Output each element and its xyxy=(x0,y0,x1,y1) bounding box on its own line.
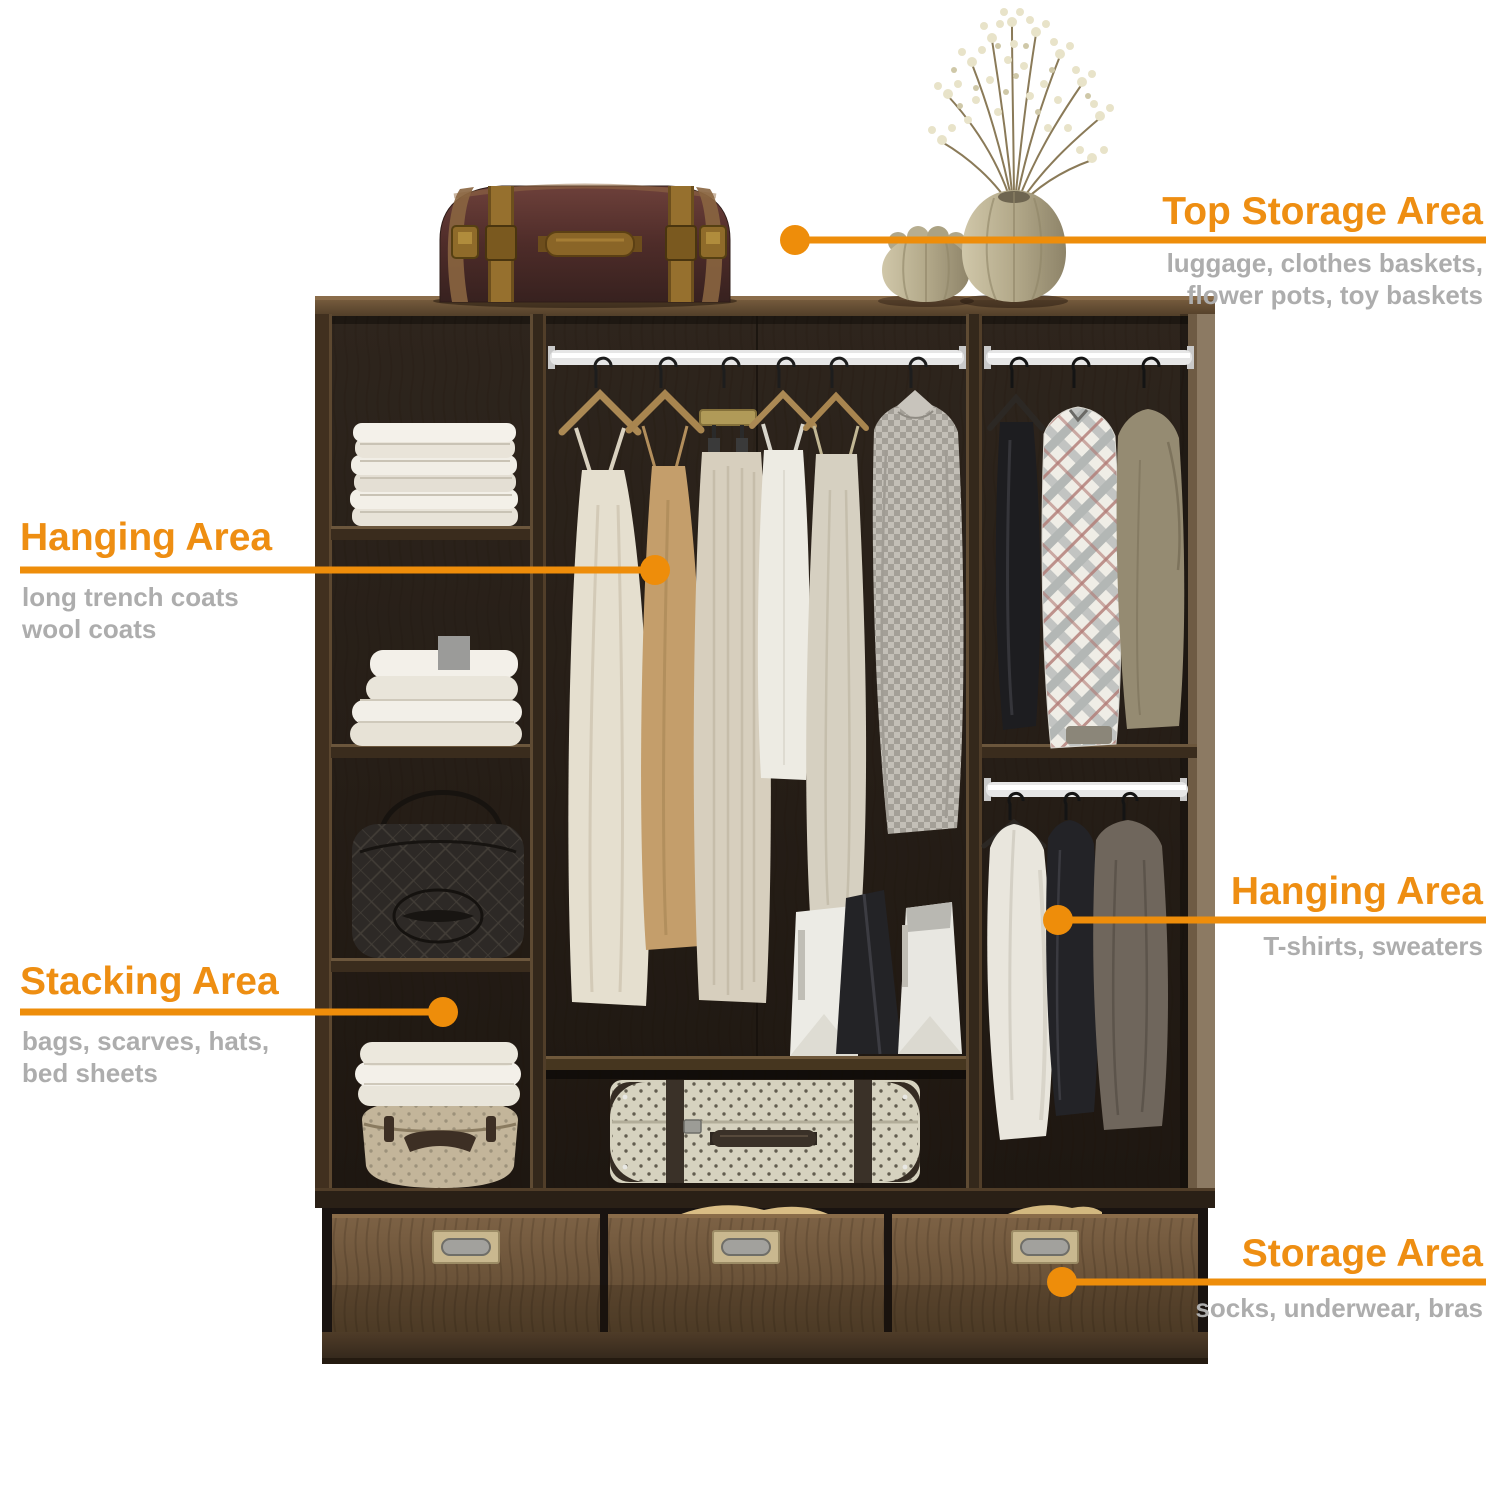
vintage-trunk xyxy=(433,186,737,308)
callout-desc-storage: socks, underwear, bras xyxy=(1195,1292,1483,1324)
callout-title-stacking: Stacking Area xyxy=(20,960,279,1004)
garment-gray-check-coat xyxy=(873,358,964,834)
callout-dot-top-storage xyxy=(780,225,810,255)
callout-dot-stacking xyxy=(428,997,458,1027)
dried-flowers xyxy=(928,8,1114,212)
small-box-on-shelf xyxy=(1066,726,1112,744)
desc-line: T-shirts, sweaters xyxy=(1263,930,1483,962)
callout-dot-hanging-right xyxy=(1043,905,1073,935)
garment-black-coat xyxy=(1046,793,1098,1116)
garment-white-coat xyxy=(984,793,1053,1140)
callout-dot-storage xyxy=(1047,1267,1077,1297)
desc-line: flower pots, toy baskets xyxy=(1167,279,1483,311)
folded-towels xyxy=(350,636,522,746)
vintage-suitcase xyxy=(610,1080,920,1183)
callout-title-top-storage: Top Storage Area xyxy=(1162,190,1483,234)
desc-line: bags, scarves, hats, xyxy=(22,1025,269,1057)
callout-desc-hanging-left: long trench coats wool coats xyxy=(22,581,239,645)
hat-box xyxy=(362,1100,518,1188)
vases xyxy=(878,190,1068,308)
folded-linens-stack xyxy=(350,423,518,526)
callout-desc-top-storage: luggage, clothes baskets, flower pots, t… xyxy=(1167,247,1483,311)
drawer-handle-3 xyxy=(1012,1231,1078,1263)
callout-desc-stacking: bags, scarves, hats, bed sheets xyxy=(22,1025,269,1089)
infographic-stage: Top Storage Area luggage, clothes basket… xyxy=(0,0,1500,1500)
desc-line: long trench coats xyxy=(22,581,239,613)
folded-sheets-stack xyxy=(355,1042,521,1106)
desc-line: luggage, clothes baskets, xyxy=(1167,247,1483,279)
desc-line: socks, underwear, bras xyxy=(1195,1292,1483,1324)
callout-desc-hanging-right: T-shirts, sweaters xyxy=(1263,930,1483,962)
vase-large xyxy=(962,190,1066,302)
callout-title-hanging-right: Hanging Area xyxy=(1231,870,1483,914)
callout-dot-hanging-left xyxy=(640,555,670,585)
callout-title-hanging-left: Hanging Area xyxy=(20,516,272,560)
shopping-bags xyxy=(790,890,962,1056)
callout-title-storage: Storage Area xyxy=(1242,1232,1483,1276)
hanging-clothes-right-bottom xyxy=(984,793,1168,1140)
desc-line: bed sheets xyxy=(22,1057,269,1089)
desc-line: wool coats xyxy=(22,613,239,645)
drawer-handle-2 xyxy=(713,1231,779,1263)
drawer-section xyxy=(315,1188,1215,1364)
drawer-handle-1 xyxy=(433,1231,499,1263)
garment-taupe-coat xyxy=(1093,793,1168,1130)
